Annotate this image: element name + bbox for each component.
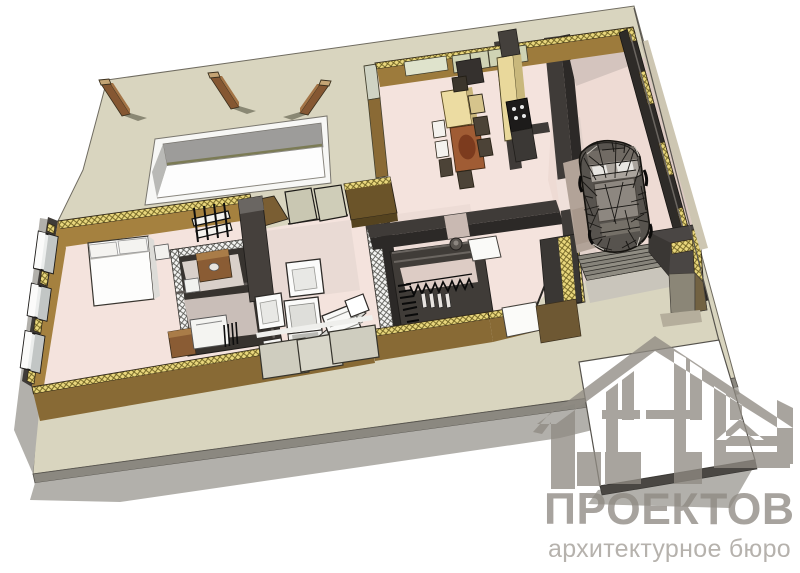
svg-text:ПРОЕКТОВ: ПРОЕКТОВ [544, 485, 794, 534]
svg-text:архитектурное бюро: архитектурное бюро [548, 535, 791, 563]
